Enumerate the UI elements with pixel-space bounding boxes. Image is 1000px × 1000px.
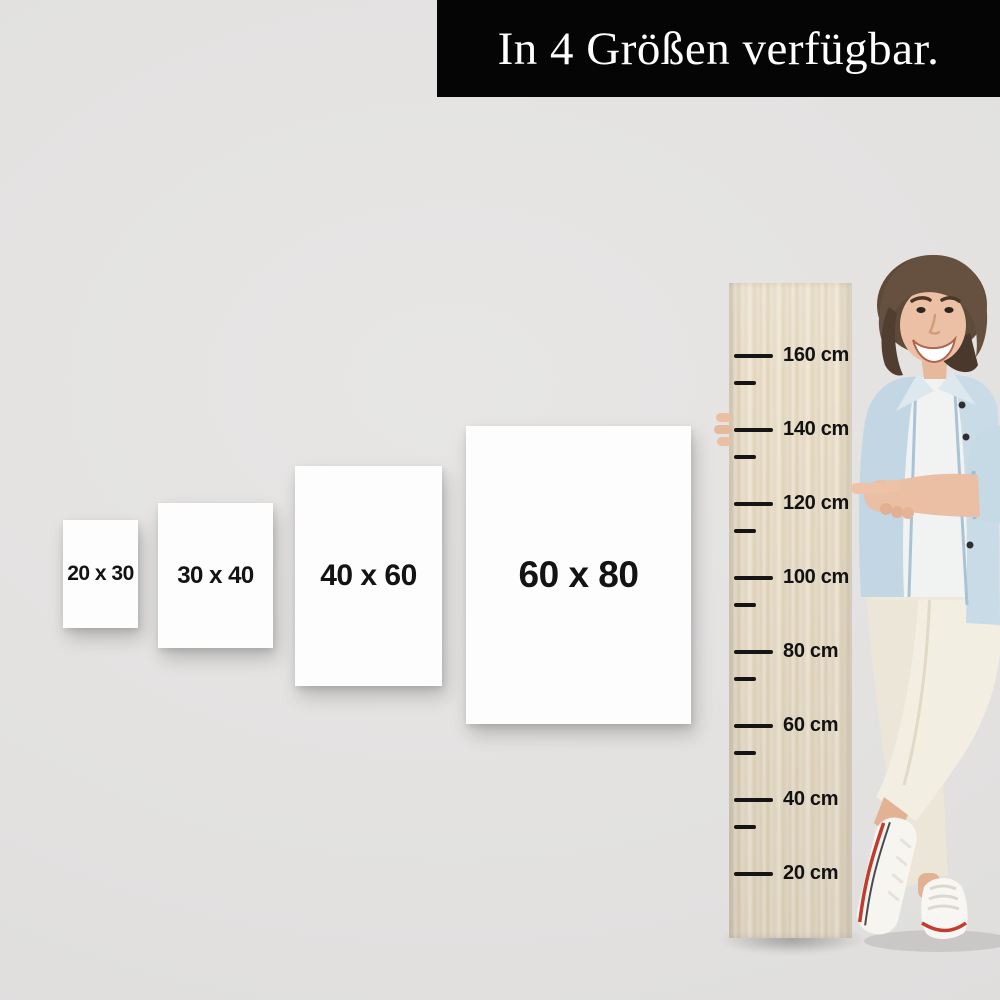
poster-size-label: 30 x 40: [177, 562, 254, 590]
availability-banner-text: In 4 Größen verfügbar.: [498, 22, 940, 76]
pointing-arm-layer: [680, 225, 1000, 965]
poster-size-60x80: 60 x 80: [466, 426, 691, 724]
pointing-arm: [851, 425, 1000, 523]
poster-size-label: 40 x 60: [320, 559, 417, 593]
poster-size-label: 60 x 80: [519, 554, 639, 596]
holding-hand-fingertips: [714, 413, 732, 446]
poster-size-label: 20 x 30: [67, 562, 134, 586]
product-size-infographic: In 4 Größen verfügbar. 20 x 30 30 x 40 4…: [0, 0, 1000, 1000]
poster-size-20x30: 20 x 30: [63, 520, 138, 628]
poster-size-40x60: 40 x 60: [295, 466, 442, 686]
availability-banner: In 4 Größen verfügbar.: [437, 0, 1000, 97]
poster-size-30x40: 30 x 40: [158, 503, 273, 648]
index-finger: [851, 483, 889, 494]
